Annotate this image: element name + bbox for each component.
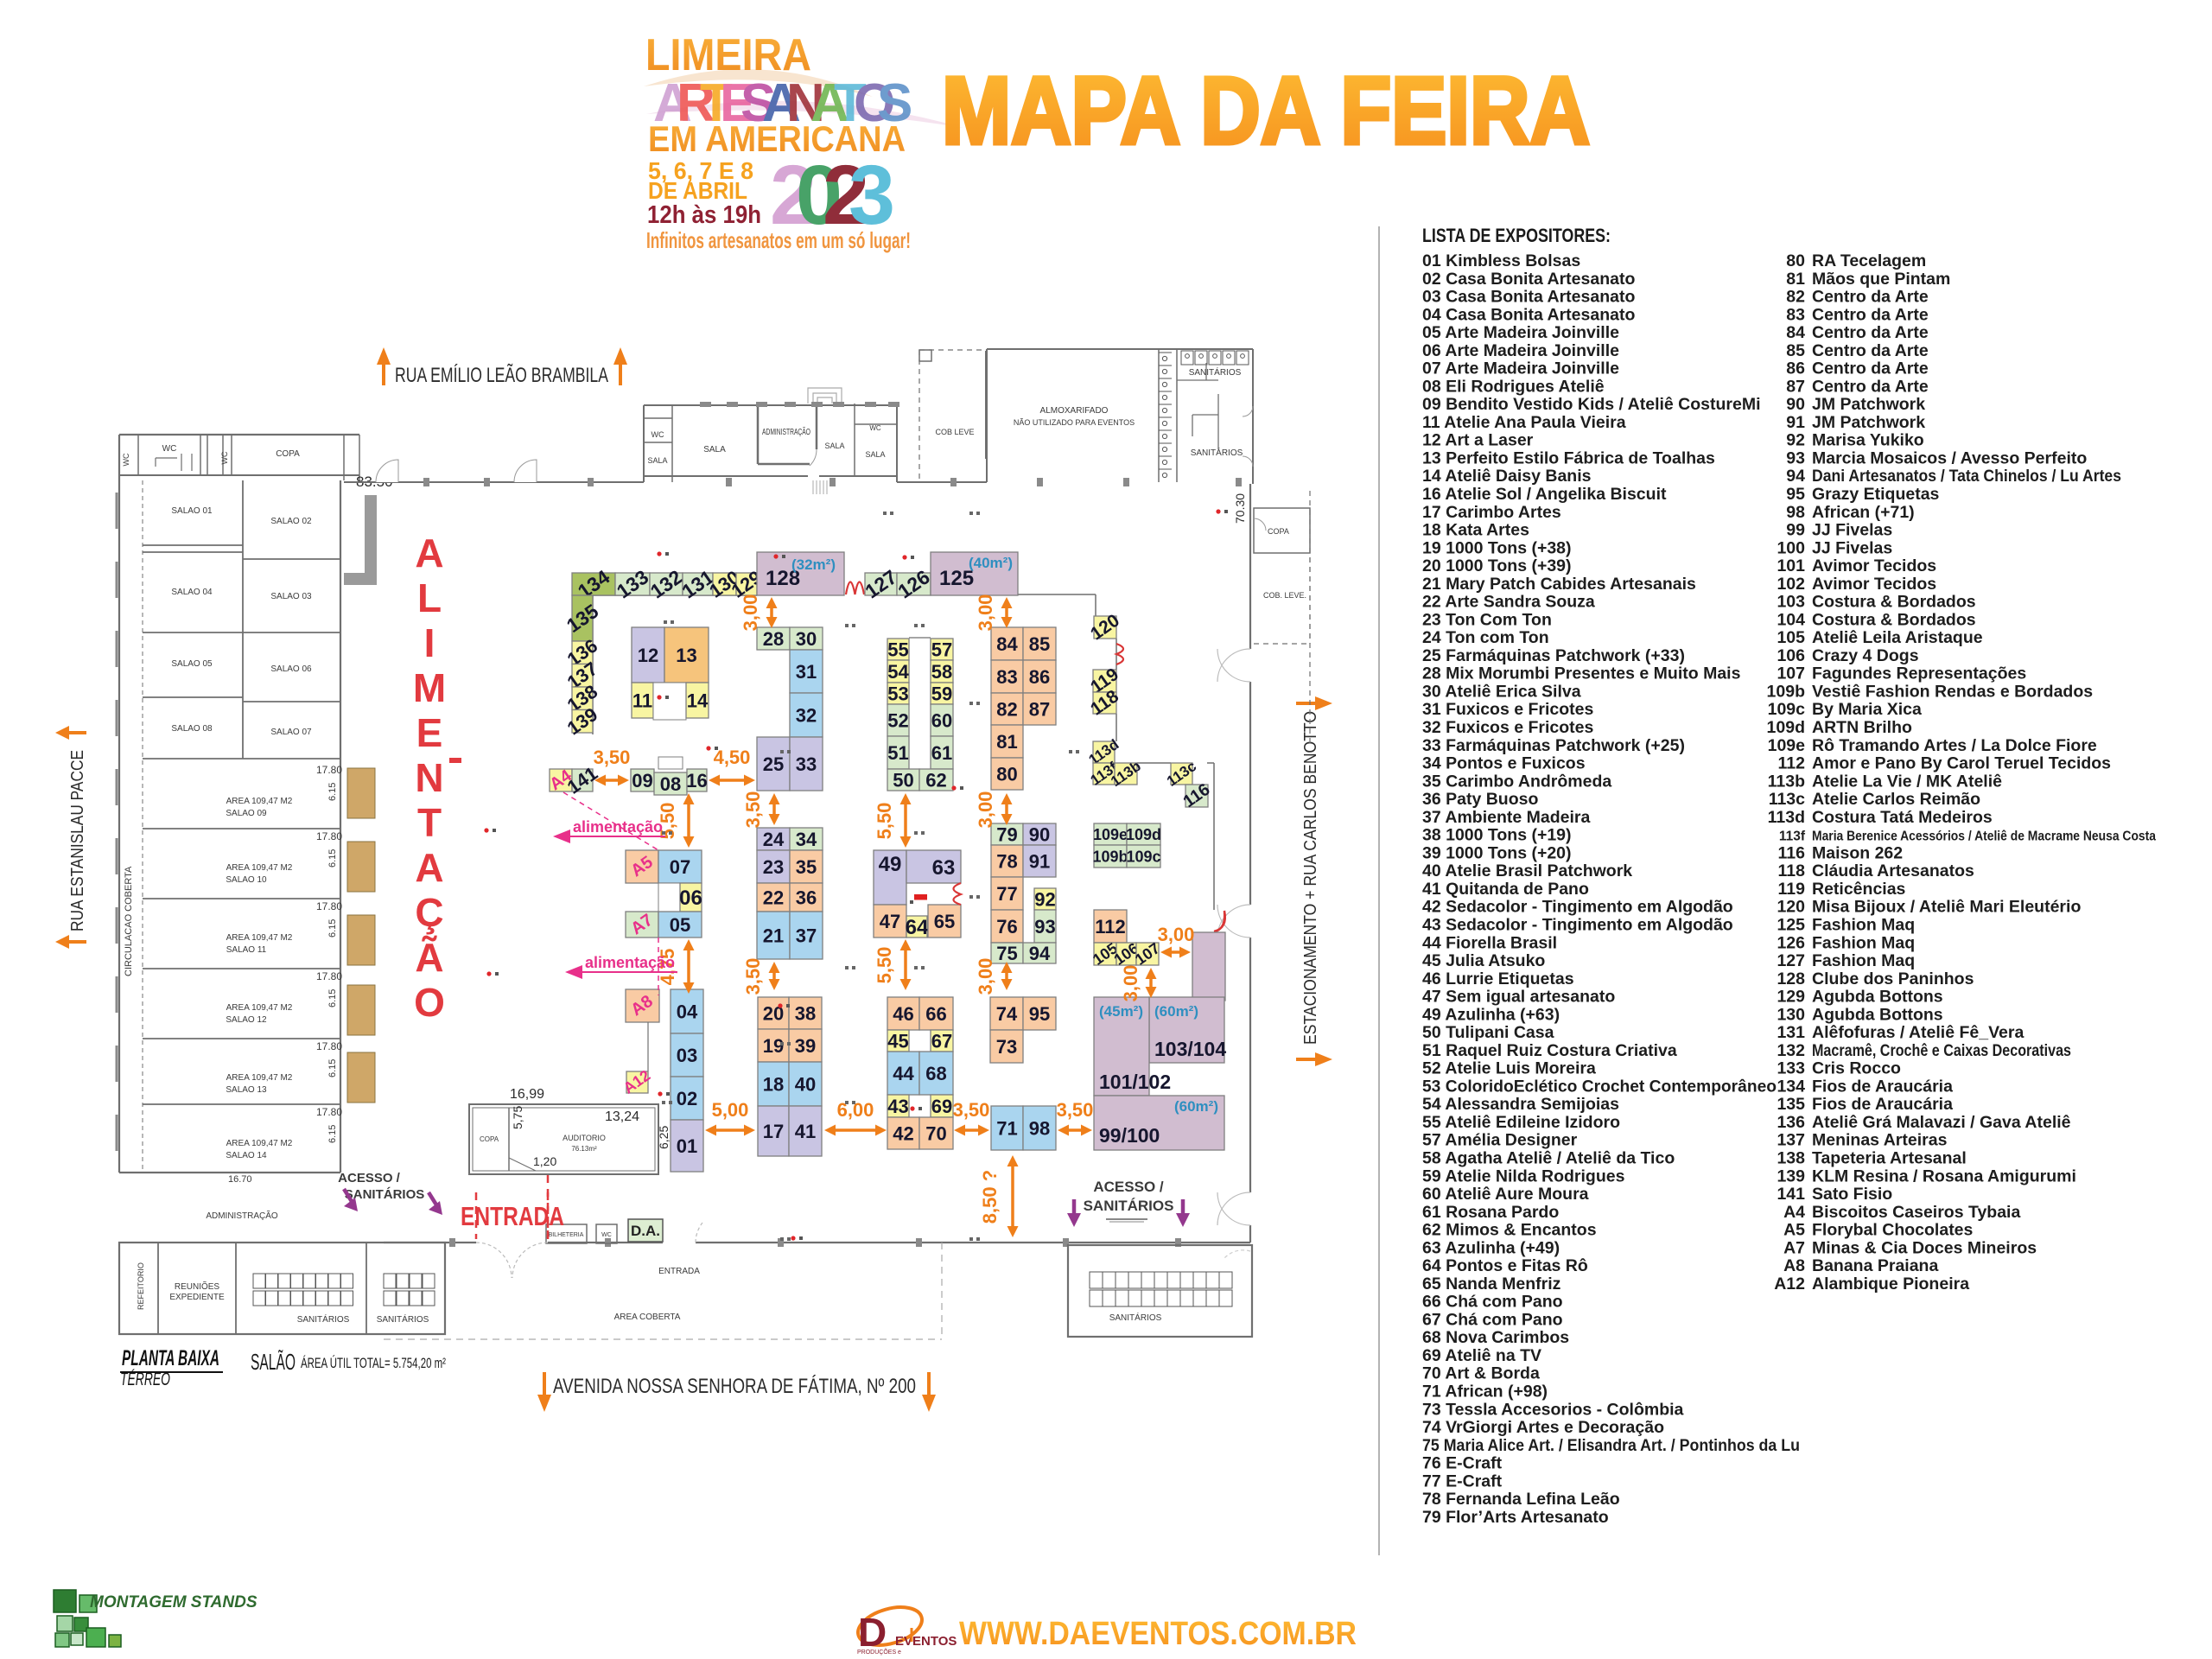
svg-text:WC: WC — [601, 1232, 612, 1238]
svg-text:05 Arte Madeira Joinville: 05 Arte Madeira Joinville — [1422, 323, 1619, 342]
svg-text:N: N — [415, 755, 443, 800]
svg-text:AVENIDA NOSSA SENHORA DE FÁTIM: AVENIDA NOSSA SENHORA DE FÁTIMA, Nº 200 — [553, 1375, 916, 1398]
svg-text:106: 106 — [1777, 646, 1805, 665]
svg-text:ENTRADA: ENTRADA — [658, 1267, 700, 1276]
svg-text:50: 50 — [893, 769, 913, 791]
svg-text:42 Sedacolor - Tingimento em A: 42 Sedacolor - Tingimento em Algodão — [1422, 898, 1733, 917]
svg-text:A12: A12 — [1774, 1274, 1805, 1294]
svg-text:65: 65 — [934, 911, 955, 932]
svg-text:23: 23 — [763, 856, 784, 878]
svg-text:Maison 262: Maison 262 — [1812, 843, 1903, 862]
svg-text:L: L — [417, 575, 442, 620]
svg-text:13,24: 13,24 — [605, 1109, 639, 1124]
svg-text:O: O — [414, 980, 445, 1025]
svg-text:87: 87 — [1029, 698, 1050, 720]
svg-text:ARTN Brilho: ARTN Brilho — [1812, 718, 1912, 737]
svg-text:6,25: 6,25 — [657, 1126, 671, 1149]
svg-text:113f: 113f — [1779, 829, 1806, 844]
svg-text:137: 137 — [1777, 1131, 1805, 1150]
svg-text:31 Fuxicos e Fricotes: 31 Fuxicos e Fricotes — [1422, 700, 1593, 719]
svg-text:SALAO 01: SALAO 01 — [171, 506, 213, 516]
svg-text:76 E-Craft: 76 E-Craft — [1422, 1454, 1503, 1473]
svg-text:01 Kimbless Bolsas: 01 Kimbless Bolsas — [1422, 251, 1580, 270]
svg-text:Cris Rocco: Cris Rocco — [1812, 1059, 1901, 1078]
svg-text:95: 95 — [1786, 485, 1805, 504]
svg-text:REUNIÕES: REUNIÕES — [175, 1281, 220, 1292]
svg-text:40: 40 — [795, 1073, 816, 1095]
svg-text:M: M — [413, 665, 446, 710]
svg-text:93: 93 — [1034, 916, 1055, 938]
svg-text:02: 02 — [677, 1088, 697, 1109]
svg-text:5,50: 5,50 — [874, 947, 895, 984]
svg-text:EVENTOS: EVENTOS — [895, 1634, 957, 1649]
svg-text:101/102: 101/102 — [1099, 1071, 1171, 1093]
svg-text:139: 139 — [1777, 1166, 1805, 1185]
svg-text:AREA 109,47 M2: AREA 109,47 M2 — [226, 863, 293, 873]
svg-text:BILHETERIA: BILHETERIA — [549, 1232, 584, 1238]
svg-text:3,50: 3,50 — [742, 791, 764, 829]
svg-text:135: 135 — [1777, 1095, 1805, 1114]
svg-text:71: 71 — [996, 1117, 1017, 1139]
svg-text:3,00: 3,00 — [1120, 965, 1141, 1002]
svg-text:Reticências: Reticências — [1812, 880, 1906, 899]
svg-text:Centro da Arte: Centro da Arte — [1812, 323, 1929, 342]
svg-text:17.80: 17.80 — [316, 764, 342, 776]
svg-text:109c: 109c — [1768, 700, 1806, 719]
svg-text:MAPA DA FEIRA: MAPA DA FEIRA — [942, 58, 1590, 164]
svg-text:79 Flor’Arts Artesanato: 79 Flor’Arts Artesanato — [1422, 1508, 1609, 1527]
svg-text:SALAO 14: SALAO 14 — [226, 1151, 267, 1160]
svg-text:36: 36 — [796, 887, 817, 908]
svg-text:SALAO 06: SALAO 06 — [270, 664, 312, 674]
svg-text:73: 73 — [996, 1036, 1017, 1058]
svg-text:WC: WC — [122, 453, 130, 466]
svg-text:I: I — [424, 620, 435, 665]
svg-text:Ateliê Leila Aristaque: Ateliê Leila Aristaque — [1812, 628, 1983, 647]
svg-text:6.15: 6.15 — [327, 989, 338, 1007]
svg-text:12: 12 — [638, 645, 658, 666]
svg-text:SALAO 02: SALAO 02 — [270, 517, 312, 526]
svg-text:Atelie Carlos Reimão: Atelie Carlos Reimão — [1812, 790, 1980, 809]
svg-text:134: 134 — [1777, 1077, 1805, 1096]
svg-text:57 Amélia Designer: 57 Amélia Designer — [1422, 1131, 1578, 1150]
svg-text:68 Nova Carimbos: 68 Nova Carimbos — [1422, 1328, 1569, 1347]
svg-text:Ç: Ç — [415, 890, 443, 935]
svg-text:COPA: COPA — [480, 1135, 499, 1143]
svg-text:T: T — [417, 800, 442, 845]
svg-text:18 Kata Artes: 18 Kata Artes — [1422, 521, 1529, 540]
svg-text:128: 128 — [1777, 969, 1805, 988]
svg-text:WC: WC — [869, 424, 881, 432]
svg-text:(60m²): (60m²) — [1174, 1098, 1218, 1115]
svg-text:58 Agatha Ateliê / Ateliê da T: 58 Agatha Ateliê / Ateliê da Tico — [1422, 1149, 1675, 1168]
svg-text:22 Arte Sandra Souza: 22 Arte Sandra Souza — [1422, 593, 1595, 612]
svg-text:By Maria Xica: By Maria Xica — [1812, 700, 1922, 719]
svg-text:21 Mary Patch Cabides Artesana: 21 Mary Patch Cabides Artesanais — [1422, 575, 1696, 594]
svg-text:3,00: 3,00 — [740, 594, 761, 632]
svg-text:3,50: 3,50 — [742, 958, 764, 995]
svg-text:17.80: 17.80 — [316, 1106, 342, 1118]
svg-text:WWW.DAEVENTOS.COM.BR: WWW.DAEVENTOS.COM.BR — [959, 1616, 1357, 1652]
svg-text:SALA: SALA — [647, 456, 667, 465]
svg-text:47 Sem igual artesanato: 47 Sem igual artesanato — [1422, 988, 1615, 1007]
svg-text:SANITÁRIOS: SANITÁRIOS — [1189, 366, 1242, 378]
svg-text:76: 76 — [996, 916, 1017, 938]
svg-text:39 1000 Tons (+20): 39 1000 Tons (+20) — [1422, 843, 1572, 862]
svg-text:47: 47 — [880, 911, 900, 932]
svg-text:64: 64 — [906, 916, 929, 939]
svg-text:ADMINISTRAÇÃO: ADMINISTRAÇÃO — [762, 426, 810, 437]
svg-text:51: 51 — [887, 742, 908, 764]
svg-text:54 Alessandra Semijoias: 54 Alessandra Semijoias — [1422, 1095, 1619, 1114]
svg-text:92: 92 — [1786, 431, 1805, 450]
svg-text:17 Carimbo Artes: 17 Carimbo Artes — [1422, 503, 1561, 522]
svg-text:46 Lurrie Etiquetas: 46 Lurrie Etiquetas — [1422, 969, 1574, 988]
svg-text:SANITÁRIOS: SANITÁRIOS — [297, 1313, 350, 1325]
svg-text:38: 38 — [795, 1002, 816, 1024]
svg-text:78: 78 — [996, 850, 1017, 872]
svg-text:07 Arte Madeira Joinville: 07 Arte Madeira Joinville — [1422, 359, 1619, 378]
svg-text:90: 90 — [1786, 395, 1805, 414]
svg-text:21: 21 — [763, 925, 784, 946]
svg-text:REFEITORIO: REFEITORIO — [137, 1262, 145, 1310]
svg-text:(32m²): (32m²) — [791, 556, 836, 573]
svg-text:44: 44 — [893, 1063, 914, 1084]
svg-text:06: 06 — [679, 887, 702, 910]
svg-text:ACESSO /: ACESSO / — [1093, 1179, 1164, 1195]
svg-text:12 Art a Laser: 12 Art a Laser — [1422, 431, 1534, 450]
svg-text:Fagundes Representações: Fagundes Representações — [1812, 664, 2026, 683]
svg-text:90: 90 — [1029, 823, 1050, 845]
svg-text:Grazy Etiquetas: Grazy Etiquetas — [1812, 485, 1940, 504]
svg-text:A: A — [415, 531, 443, 575]
svg-text:SANITÁRIOS: SANITÁRIOS — [1109, 1312, 1162, 1323]
svg-text:SALA: SALA — [824, 442, 844, 450]
svg-text:A7: A7 — [1783, 1238, 1805, 1257]
svg-text:17.80: 17.80 — [316, 900, 342, 912]
svg-text:Alambique Pioneira: Alambique Pioneira — [1812, 1274, 1969, 1294]
svg-text:Infinitos artesanatos em um só: Infinitos artesanatos em um só lugar! — [646, 227, 911, 253]
svg-text:22: 22 — [763, 887, 784, 908]
svg-text:D: D — [858, 1610, 887, 1655]
svg-text:107: 107 — [1777, 664, 1805, 683]
svg-text:52 Atelie Luis Moreira: 52 Atelie Luis Moreira — [1422, 1059, 1596, 1078]
svg-text:NÃO UTILIZADO PARA EVENTOS: NÃO UTILIZADO PARA EVENTOS — [1014, 418, 1135, 427]
svg-text:109b: 109b — [1767, 683, 1806, 702]
svg-text:SANITÁRIOS: SANITÁRIOS — [1084, 1198, 1174, 1214]
svg-text:20 1000 Tons (+39): 20 1000 Tons (+39) — [1422, 556, 1572, 575]
svg-text:09 Bendito Vestido Kids / Atel: 09 Bendito Vestido Kids / Ateliê Costure… — [1422, 395, 1761, 414]
svg-text:14 Ateliê Daisy Banis: 14 Ateliê Daisy Banis — [1422, 467, 1592, 486]
svg-text:Clube dos Paninhos: Clube dos Paninhos — [1812, 969, 1974, 988]
svg-text:82: 82 — [1786, 288, 1805, 307]
svg-text:JM Patchwork: JM Patchwork — [1812, 413, 1925, 432]
svg-text:49: 49 — [879, 853, 902, 876]
svg-text:AUDITORIO: AUDITORIO — [563, 1134, 606, 1142]
svg-text:32: 32 — [796, 704, 817, 726]
svg-text:93: 93 — [1786, 449, 1805, 468]
svg-text:SANITÁRIOS: SANITÁRIOS — [1191, 447, 1243, 458]
svg-text:09: 09 — [632, 770, 652, 791]
svg-text:53: 53 — [887, 683, 908, 704]
svg-text:87: 87 — [1786, 377, 1805, 396]
svg-text:JJ Fivelas: JJ Fivelas — [1812, 521, 1892, 540]
svg-text:17.80: 17.80 — [316, 1040, 342, 1052]
svg-text:91: 91 — [1786, 413, 1805, 432]
svg-text:99: 99 — [1786, 521, 1805, 540]
svg-text:84: 84 — [1786, 323, 1805, 342]
svg-text:61 Rosana Pardo: 61 Rosana Pardo — [1422, 1203, 1559, 1222]
svg-text:A: A — [415, 845, 443, 890]
svg-text:JJ Fivelas: JJ Fivelas — [1812, 538, 1892, 557]
svg-text:COB. LEVE.: COB. LEVE. — [1263, 591, 1306, 600]
svg-text:6.15: 6.15 — [327, 919, 338, 938]
svg-text:50 Tulipani Casa: 50 Tulipani Casa — [1422, 1023, 1554, 1042]
svg-text:04: 04 — [677, 1001, 698, 1022]
svg-text:63: 63 — [932, 856, 956, 880]
svg-text:24: 24 — [763, 829, 785, 850]
svg-text:67 Chá com Pano: 67 Chá com Pano — [1422, 1310, 1563, 1329]
svg-text:113b: 113b — [1768, 772, 1805, 791]
svg-text:3,50: 3,50 — [594, 747, 631, 768]
svg-text:16: 16 — [686, 770, 707, 791]
svg-text:19: 19 — [763, 1035, 784, 1057]
svg-text:25 Farmáquinas Patchwork (+33): 25 Farmáquinas Patchwork (+33) — [1422, 646, 1685, 665]
svg-text:AREA 109,47 M2: AREA 109,47 M2 — [226, 933, 293, 943]
svg-text:A4: A4 — [1783, 1203, 1805, 1222]
svg-text:116: 116 — [1778, 843, 1806, 862]
svg-text:Cláudia Artesanatos: Cláudia Artesanatos — [1812, 861, 1974, 880]
svg-text:113c: 113c — [1769, 790, 1805, 809]
svg-text:Fashion Maq: Fashion Maq — [1812, 916, 1915, 935]
svg-text:132: 132 — [1777, 1041, 1805, 1060]
svg-text:AREA 109,47 M2: AREA 109,47 M2 — [226, 1073, 293, 1083]
svg-text:KLM Resina / Rosana Amigurumi: KLM Resina / Rosana Amigurumi — [1812, 1166, 2076, 1185]
svg-text:60: 60 — [931, 709, 952, 731]
svg-text:Alêfofuras / Ateliê Fê_Vera: Alêfofuras / Ateliê Fê_Vera — [1812, 1023, 2024, 1042]
svg-text:19 1000 Tons (+38): 19 1000 Tons (+38) — [1422, 538, 1572, 557]
svg-text:77 E-Craft: 77 E-Craft — [1422, 1471, 1503, 1491]
svg-text:53 ColoridoEclético Crochet Co: 53 ColoridoEclético Crochet Contemporâne… — [1422, 1077, 1777, 1096]
svg-text:41: 41 — [795, 1121, 816, 1142]
svg-text:ESTACIONAMENTO + RUA CARLOS BE: ESTACIONAMENTO + RUA CARLOS BENOTTO — [1301, 711, 1320, 1045]
svg-text:SALAO 05: SALAO 05 — [171, 659, 213, 669]
svg-text:71 African (+98): 71 African (+98) — [1422, 1382, 1548, 1402]
svg-text:64 Pontos e Fitas Rô: 64 Pontos e Fitas Rô — [1422, 1256, 1588, 1275]
svg-text:Centro da Arte: Centro da Arte — [1812, 359, 1929, 378]
svg-text:Minas & Cia Doces Mineiros: Minas & Cia Doces Mineiros — [1812, 1238, 2037, 1257]
svg-text:DE ABRIL: DE ABRIL — [648, 177, 747, 204]
svg-text:A8: A8 — [1783, 1256, 1805, 1275]
svg-text:30: 30 — [796, 628, 817, 650]
svg-text:D.A.: D.A. — [631, 1223, 660, 1239]
svg-text:Meninas Arteiras: Meninas Arteiras — [1812, 1131, 1948, 1150]
svg-text:69 Ateliê na TV: 69 Ateliê na TV — [1422, 1346, 1541, 1365]
svg-text:77: 77 — [996, 883, 1017, 905]
svg-text:12h às 19h: 12h às 19h — [647, 201, 761, 229]
svg-text:Ã: Ã — [415, 935, 443, 980]
svg-text:Maria Berenice Acessórios / At: Maria Berenice Acessórios / Ateliê de Ma… — [1812, 829, 2156, 844]
svg-text:SALAO 11: SALAO 11 — [226, 945, 267, 955]
svg-text:63 Azulinha (+49): 63 Azulinha (+49) — [1422, 1238, 1560, 1257]
svg-text:Costura & Bordados: Costura & Bordados — [1812, 610, 1976, 629]
svg-text:COB LEVE: COB LEVE — [935, 428, 974, 436]
svg-text:11: 11 — [632, 690, 652, 711]
svg-text:80: 80 — [1786, 251, 1805, 270]
svg-text:67: 67 — [931, 1030, 952, 1052]
svg-text:Marisa Yukiko: Marisa Yukiko — [1812, 431, 1924, 450]
svg-text:138: 138 — [1777, 1149, 1805, 1168]
svg-text:35: 35 — [796, 856, 817, 878]
svg-text:SALÃO: SALÃO — [251, 1349, 296, 1375]
svg-text:Banana Praiana: Banana Praiana — [1812, 1256, 1938, 1275]
svg-text:51 Raquel Ruiz Costura Criativ: 51 Raquel Ruiz Costura Criativa — [1422, 1041, 1677, 1060]
svg-text:59: 59 — [931, 683, 952, 704]
svg-text:44 Fiorella Brasil: 44 Fiorella Brasil — [1422, 933, 1557, 952]
svg-text:Florybal Chocolates: Florybal Chocolates — [1812, 1221, 1974, 1240]
svg-text:37: 37 — [796, 925, 817, 946]
svg-text:94: 94 — [1786, 467, 1805, 486]
svg-text:WC: WC — [220, 451, 229, 464]
svg-text:4,50: 4,50 — [714, 747, 751, 768]
svg-text:AREA 109,47 M2: AREA 109,47 M2 — [226, 797, 293, 806]
svg-text:Ateliê Grá Malavazi / Gava Ate: Ateliê Grá Malavazi / Gava Ateliê — [1812, 1113, 2071, 1132]
svg-text:Amor e Pano By Carol Teruel Te: Amor e Pano By Carol Teruel Tecidos — [1812, 754, 2111, 773]
svg-text:African (+71): African (+71) — [1812, 503, 1915, 522]
svg-text:74 VrGiorgi Artes e Decoração: 74 VrGiorgi Artes e Decoração — [1422, 1418, 1664, 1437]
svg-text:59 Atelie Nilda Rodrigues: 59 Atelie Nilda Rodrigues — [1422, 1166, 1625, 1185]
svg-text:86: 86 — [1786, 359, 1805, 378]
svg-text:43 Sedacolor - Tingimento em A: 43 Sedacolor - Tingimento em Algodão — [1422, 916, 1733, 935]
svg-text:PRODUÇÕES e: PRODUÇÕES e — [857, 1648, 901, 1656]
svg-text:109c: 109c — [1126, 848, 1160, 865]
svg-text:5,00: 5,00 — [712, 1099, 749, 1121]
svg-text:17.80: 17.80 — [316, 970, 342, 982]
svg-text:Agubda Bottons: Agubda Bottons — [1812, 1005, 1943, 1024]
svg-text:80: 80 — [996, 763, 1017, 785]
svg-text:46: 46 — [893, 1003, 913, 1025]
svg-text:SALAO 03: SALAO 03 — [270, 592, 312, 601]
svg-text:103/104: 103/104 — [1154, 1038, 1226, 1060]
svg-text:SALAO 08: SALAO 08 — [171, 724, 213, 734]
svg-text:94: 94 — [1029, 943, 1051, 964]
svg-text:Crazy 4 Dogs: Crazy 4 Dogs — [1812, 646, 1919, 665]
svg-text:16,99: 16,99 — [510, 1087, 544, 1102]
svg-text:113d: 113d — [1768, 808, 1805, 827]
svg-text:Avimor Tecidos: Avimor Tecidos — [1812, 575, 1936, 594]
svg-text:35 Carimbo Andrômeda: 35 Carimbo Andrômeda — [1422, 772, 1611, 791]
svg-text:125: 125 — [1777, 916, 1805, 935]
svg-text:COPA: COPA — [276, 449, 300, 459]
svg-text:3,00: 3,00 — [975, 594, 996, 632]
svg-text:91: 91 — [1029, 850, 1050, 872]
svg-text:141: 141 — [1777, 1185, 1805, 1204]
svg-text:127: 127 — [1777, 951, 1805, 970]
svg-text:Macramê, Crochê e Caixas Decor: Macramê, Crochê e Caixas Decorativas — [1812, 1041, 2071, 1060]
svg-text:62: 62 — [925, 769, 946, 791]
svg-text:8,50 ?: 8,50 ? — [979, 1170, 1001, 1224]
svg-text:Agubda Bottons: Agubda Bottons — [1812, 988, 1943, 1007]
svg-text:Marcia Mosaicos / Avesso Perfe: Marcia Mosaicos / Avesso Perfeito — [1812, 449, 2087, 468]
svg-text:Rô Tramando Artes / La Dolce F: Rô Tramando Artes / La Dolce Fiore — [1812, 736, 2097, 755]
svg-text:33: 33 — [796, 753, 817, 775]
svg-text:ÁREA ÚTIL TOTAL= 5.754,20 m²: ÁREA ÚTIL TOTAL= 5.754,20 m² — [301, 1355, 446, 1371]
svg-text:6.15: 6.15 — [327, 1125, 338, 1143]
svg-text:08 Eli Rodrigues Ateliê: 08 Eli Rodrigues Ateliê — [1422, 377, 1605, 396]
svg-text:11 Atelie Ana Paula Vieira: 11 Atelie Ana Paula Vieira — [1422, 413, 1626, 432]
svg-text:SALAO 09: SALAO 09 — [226, 809, 267, 818]
svg-text:109e: 109e — [1093, 826, 1128, 843]
svg-text:30 Ateliê Erica Silva: 30 Ateliê Erica Silva — [1422, 683, 1581, 702]
svg-text:1,20: 1,20 — [533, 1154, 556, 1168]
svg-text:81: 81 — [996, 731, 1017, 753]
svg-text:38 1000 Tons (+19): 38 1000 Tons (+19) — [1422, 826, 1572, 845]
svg-text:Costura Tatá Medeiros: Costura Tatá Medeiros — [1812, 808, 1993, 827]
svg-text:75 Maria Alice Art. / Elisandr: 75 Maria Alice Art. / Elisandra Art. / P… — [1422, 1436, 1800, 1455]
svg-text:Fashion Maq: Fashion Maq — [1812, 951, 1915, 970]
svg-text:112: 112 — [1778, 754, 1806, 773]
svg-text:6.15: 6.15 — [327, 1059, 338, 1077]
svg-text:A5: A5 — [1783, 1221, 1805, 1240]
svg-text:Atelie La Vie / MK Ateliê: Atelie La Vie / MK Ateliê — [1812, 772, 2002, 791]
svg-text:60 Ateliê Aure Moura: 60 Ateliê Aure Moura — [1422, 1185, 1589, 1204]
svg-text:17.80: 17.80 — [316, 830, 342, 842]
svg-text:112: 112 — [1095, 916, 1126, 938]
svg-text:43: 43 — [887, 1096, 908, 1117]
svg-text:Mãos que Pintam: Mãos que Pintam — [1812, 270, 1950, 289]
svg-text:86: 86 — [1029, 666, 1050, 688]
svg-text:70 Art & Borda: 70 Art & Borda — [1422, 1364, 1540, 1383]
svg-text:(40m²): (40m²) — [969, 555, 1013, 571]
svg-text:03 Casa Bonita Artesanato: 03 Casa Bonita Artesanato — [1422, 288, 1635, 307]
svg-text:39: 39 — [795, 1035, 816, 1057]
svg-text:104: 104 — [1777, 610, 1805, 629]
svg-text:45: 45 — [887, 1030, 908, 1052]
svg-text:RUA ESTANISLAU PACCE: RUA ESTANISLAU PACCE — [68, 750, 87, 931]
svg-text:06 Arte Madeira Joinville: 06 Arte Madeira Joinville — [1422, 341, 1619, 360]
svg-text:25: 25 — [763, 753, 784, 775]
svg-text:LISTA DE EXPOSITORES:: LISTA DE EXPOSITORES: — [1422, 225, 1611, 246]
svg-text:55: 55 — [887, 639, 908, 660]
svg-text:02 Casa Bonita Artesanato: 02 Casa Bonita Artesanato — [1422, 270, 1635, 289]
svg-text:08: 08 — [660, 773, 681, 795]
svg-text:SANITÁRIOS: SANITÁRIOS — [345, 1187, 425, 1202]
svg-text:34 Pontos e Fuxicos: 34 Pontos e Fuxicos — [1422, 754, 1586, 773]
svg-text:81: 81 — [1786, 270, 1805, 289]
svg-text:SALAO 13: SALAO 13 — [226, 1085, 267, 1095]
svg-text:130: 130 — [1777, 1005, 1805, 1024]
svg-text:SALAO 07: SALAO 07 — [270, 728, 312, 737]
svg-text:85: 85 — [1029, 633, 1050, 655]
svg-text:13: 13 — [676, 645, 696, 666]
svg-text:ACESSO /: ACESSO / — [338, 1171, 401, 1185]
svg-text:01: 01 — [677, 1135, 697, 1157]
svg-text:62 Mimos & Encantos: 62 Mimos & Encantos — [1422, 1221, 1597, 1240]
svg-text:3,00: 3,00 — [1158, 924, 1195, 945]
svg-text:109e: 109e — [1768, 736, 1806, 755]
svg-text:WC: WC — [652, 430, 664, 439]
svg-text:69: 69 — [931, 1096, 952, 1117]
svg-text:07: 07 — [670, 856, 690, 878]
svg-text:14: 14 — [687, 690, 709, 711]
svg-text:SALAO 12: SALAO 12 — [226, 1015, 267, 1025]
svg-text:36 Paty Buoso: 36 Paty Buoso — [1422, 790, 1538, 809]
svg-text:131: 131 — [1777, 1023, 1805, 1042]
svg-text:66 Chá com Pano: 66 Chá com Pano — [1422, 1293, 1563, 1312]
svg-text:73 Tessla Accesorios - Colômbi: 73 Tessla Accesorios - Colômbia — [1422, 1400, 1684, 1419]
svg-text:68: 68 — [925, 1063, 946, 1084]
svg-text:5,50: 5,50 — [874, 803, 895, 840]
